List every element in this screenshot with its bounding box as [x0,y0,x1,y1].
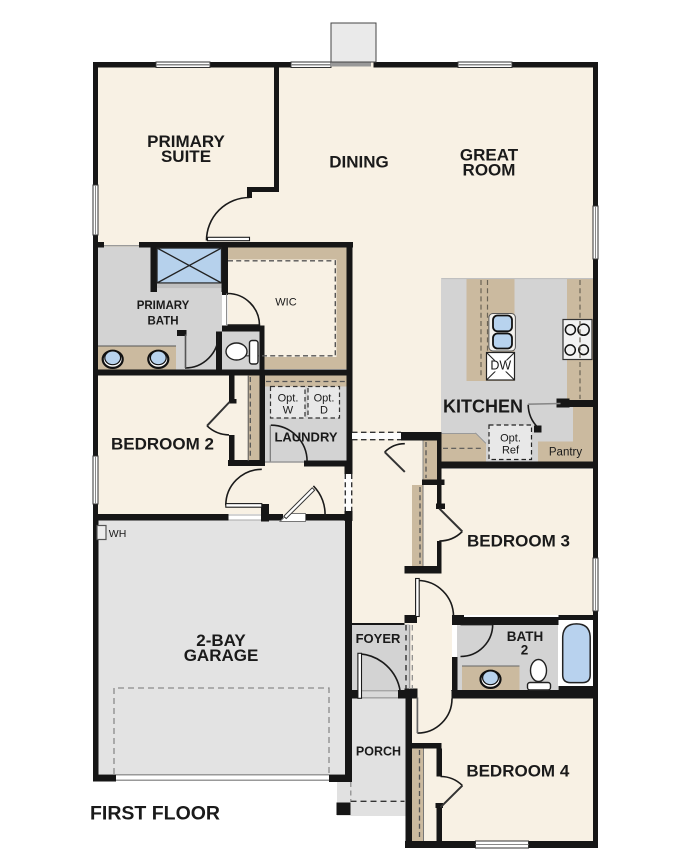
svg-text:KITCHEN: KITCHEN [443,397,523,417]
svg-text:Opt.: Opt. [314,393,335,405]
svg-text:SUITE: SUITE [161,147,211,166]
svg-text:BEDROOM 2: BEDROOM 2 [111,435,214,454]
svg-text:WIC: WIC [275,297,296,309]
svg-text:PRIMARY: PRIMARY [137,300,190,312]
svg-text:FOYER: FOYER [356,631,401,646]
svg-text:BATH: BATH [147,316,178,328]
svg-text:PORCH: PORCH [356,745,401,759]
svg-text:W: W [283,405,294,417]
svg-text:Pantry: Pantry [549,447,582,459]
svg-text:WH: WH [109,528,127,540]
svg-text:DINING: DINING [329,153,389,172]
svg-text:FIRST FLOOR: FIRST FLOOR [90,803,220,825]
svg-text:BEDROOM 3: BEDROOM 3 [467,532,570,551]
svg-text:DW: DW [490,359,511,373]
svg-text:Ref: Ref [502,445,520,457]
svg-text:ROOM: ROOM [463,161,516,180]
svg-text:2: 2 [521,643,529,658]
svg-text:BEDROOM 4: BEDROOM 4 [466,762,570,781]
svg-text:Opt.: Opt. [278,393,299,405]
svg-text:LAUNDRY: LAUNDRY [274,430,337,445]
svg-text:GARAGE: GARAGE [184,646,259,665]
svg-text:D: D [320,405,328,417]
svg-text:Opt.: Opt. [500,433,521,445]
